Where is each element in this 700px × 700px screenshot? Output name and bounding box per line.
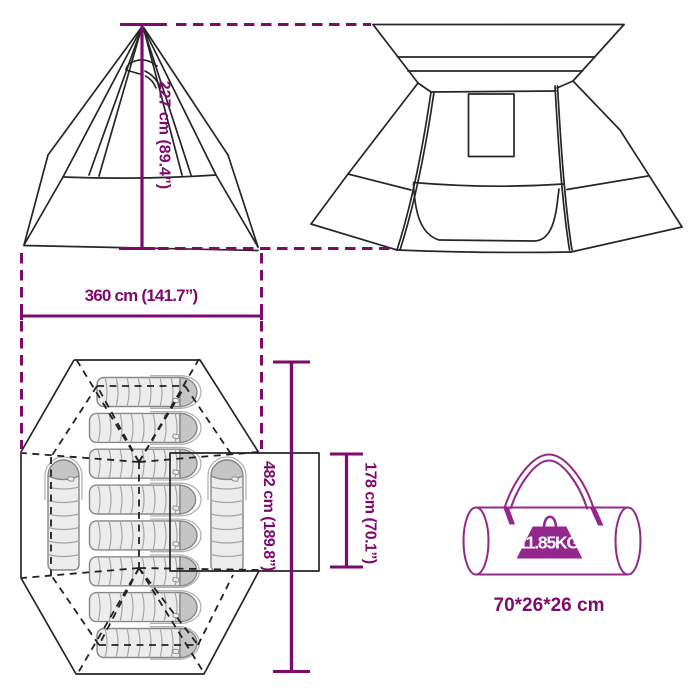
svg-text:360 cm (141.7”): 360 cm (141.7”) xyxy=(85,286,198,305)
svg-text:11.85KG: 11.85KG xyxy=(518,533,579,553)
svg-text:70*26*26 cm: 70*26*26 cm xyxy=(494,595,605,616)
svg-text:178 cm (70.1”): 178 cm (70.1”) xyxy=(362,462,379,564)
svg-text:227 cm (89.4”): 227 cm (89.4”) xyxy=(156,81,173,190)
svg-text:482 cm (189.8”): 482 cm (189.8”) xyxy=(260,461,277,571)
